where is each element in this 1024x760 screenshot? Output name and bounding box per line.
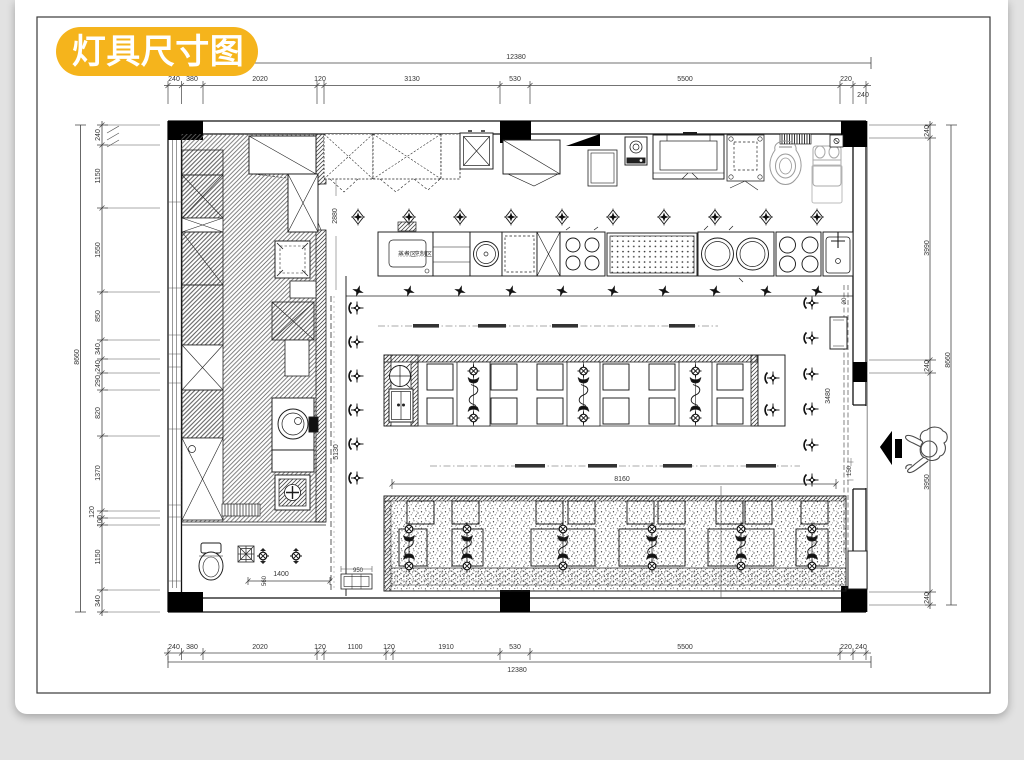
svg-text:5130: 5130 bbox=[333, 444, 340, 460]
svg-text:120: 120 bbox=[89, 506, 96, 518]
svg-text:120: 120 bbox=[314, 76, 326, 83]
svg-text:2880: 2880 bbox=[332, 208, 339, 224]
svg-text:850: 850 bbox=[95, 310, 102, 322]
svg-text:3990: 3990 bbox=[924, 240, 931, 256]
svg-text:5500: 5500 bbox=[677, 76, 693, 83]
svg-text:240: 240 bbox=[168, 644, 180, 651]
svg-text:1100: 1100 bbox=[347, 644, 362, 651]
svg-text:820: 820 bbox=[95, 407, 102, 419]
svg-text:530: 530 bbox=[509, 76, 521, 83]
svg-text:1400: 1400 bbox=[273, 571, 289, 578]
svg-text:220: 220 bbox=[840, 644, 852, 651]
svg-text:240: 240 bbox=[168, 76, 180, 83]
svg-text:5500: 5500 bbox=[677, 644, 693, 651]
svg-text:8160: 8160 bbox=[614, 476, 630, 483]
svg-text:240: 240 bbox=[855, 644, 867, 651]
svg-text:120: 120 bbox=[314, 644, 326, 651]
svg-text:8660: 8660 bbox=[74, 349, 81, 365]
svg-text:240: 240 bbox=[95, 129, 102, 141]
svg-text:2020: 2020 bbox=[252, 644, 268, 651]
svg-text:3130: 3130 bbox=[404, 76, 420, 83]
svg-text:380: 380 bbox=[186, 76, 198, 83]
svg-text:240: 240 bbox=[924, 592, 931, 604]
svg-text:1370: 1370 bbox=[95, 465, 102, 481]
svg-text:1150: 1150 bbox=[95, 549, 102, 564]
svg-text:12380: 12380 bbox=[506, 54, 526, 61]
svg-text:120: 120 bbox=[383, 644, 395, 651]
svg-text:20: 20 bbox=[842, 297, 848, 304]
svg-text:100: 100 bbox=[97, 515, 104, 527]
svg-text:240: 240 bbox=[924, 360, 931, 372]
svg-text:290: 290 bbox=[95, 375, 102, 387]
svg-text:150: 150 bbox=[847, 465, 853, 476]
svg-text:8660: 8660 bbox=[945, 352, 952, 368]
svg-text:灯具尺寸图: 灯具尺寸图 bbox=[72, 33, 245, 71]
svg-text:12380: 12380 bbox=[507, 667, 527, 674]
svg-text:340: 340 bbox=[95, 595, 102, 607]
svg-text:240: 240 bbox=[95, 360, 102, 372]
svg-text:220: 220 bbox=[840, 76, 852, 83]
svg-text:340: 340 bbox=[95, 343, 102, 355]
svg-text:240: 240 bbox=[924, 125, 931, 137]
svg-text:3480: 3480 bbox=[825, 388, 832, 404]
svg-text:240: 240 bbox=[857, 92, 869, 99]
svg-text:1910: 1910 bbox=[438, 644, 454, 651]
svg-text:烹制区: 烹制区 bbox=[414, 250, 432, 258]
svg-text:1150: 1150 bbox=[95, 168, 102, 183]
svg-text:530: 530 bbox=[509, 644, 521, 651]
svg-text:3950: 3950 bbox=[924, 474, 931, 490]
svg-text:380: 380 bbox=[186, 644, 198, 651]
svg-text:2020: 2020 bbox=[252, 76, 268, 83]
svg-text:560: 560 bbox=[262, 575, 268, 586]
svg-text:1550: 1550 bbox=[95, 242, 102, 258]
